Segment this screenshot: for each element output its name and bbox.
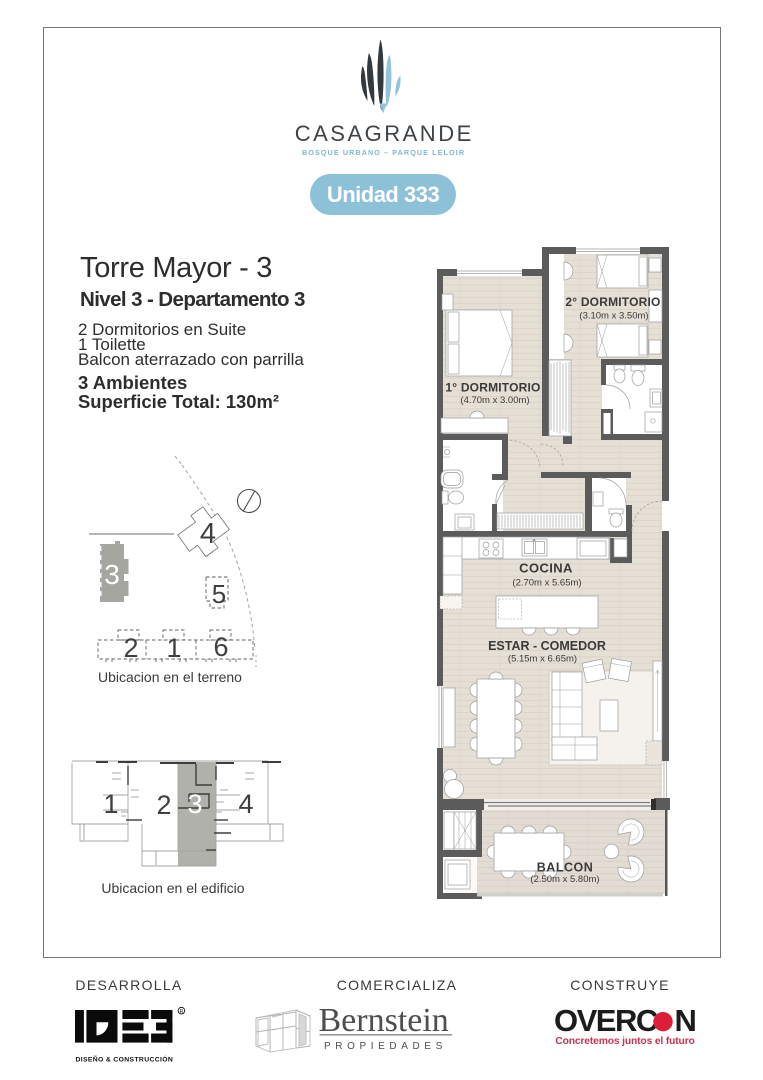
svg-text:1: 1 [103,789,118,819]
svg-text:COCINA: COCINA [519,561,573,576]
svg-text:4: 4 [238,789,253,819]
svg-text:Ubicacion en el edificio: Ubicacion en el edificio [101,880,244,896]
svg-text:OVERC: OVERC [554,1003,658,1037]
svg-text:Ubicacion en el terreno: Ubicacion en el terreno [98,669,242,685]
svg-text:BALCON: BALCON [537,861,593,875]
svg-text:2° DORMITORIO: 2° DORMITORIO [565,295,660,309]
svg-text:(4.70m x 3.00m): (4.70m x 3.00m) [460,395,529,406]
svg-text:N: N [675,1003,697,1037]
svg-text:5: 5 [212,579,226,609]
svg-text:(3.10m x 3.50m): (3.10m x 3.50m) [579,311,648,322]
svg-text:(2.70m x 5.65m): (2.70m x 5.65m) [512,578,581,589]
svg-text:ESTAR - COMEDOR: ESTAR - COMEDOR [488,639,606,653]
svg-text:6: 6 [213,632,228,662]
svg-text:R: R [180,1009,184,1015]
svg-text:PROPIEDADES: PROPIEDADES [324,1041,447,1052]
svg-text:2: 2 [123,633,138,663]
svg-text:DISEÑO & CONSTRUCCIÓN: DISEÑO & CONSTRUCCIÓN [76,1055,174,1064]
svg-text:1° DORMITORIO: 1° DORMITORIO [445,381,540,395]
svg-text:4: 4 [200,518,216,550]
svg-text:3: 3 [104,559,120,590]
svg-text:(2.50m x 5.80m): (2.50m x 5.80m) [530,874,599,885]
svg-text:2: 2 [156,790,171,820]
svg-text:3: 3 [187,789,202,819]
svg-text:Bernstein: Bernstein [319,1002,449,1039]
svg-text:1: 1 [166,633,181,663]
svg-text:(5.15m x 6.65m): (5.15m x 6.65m) [508,654,577,665]
